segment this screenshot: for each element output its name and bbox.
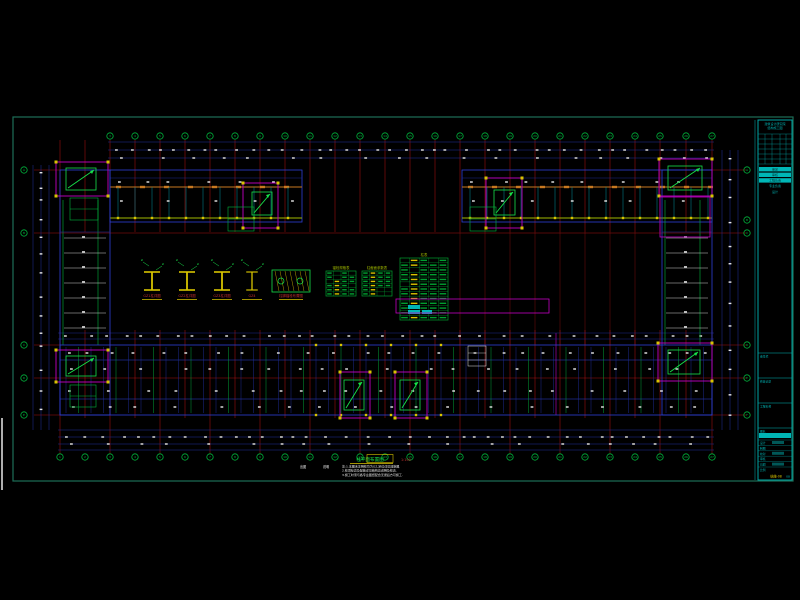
svg-text:6: 6 [184, 134, 186, 138]
svg-text:11: 11 [308, 455, 312, 459]
svg-text:23: 23 [608, 134, 612, 138]
svg-text:26: 26 [684, 455, 688, 459]
svg-text:13: 13 [358, 134, 362, 138]
svg-text:10: 10 [283, 134, 287, 138]
svg-text:12: 12 [333, 134, 337, 138]
svg-text:柱平面布置图: 柱平面布置图 [356, 456, 384, 463]
svg-text:C: C [23, 343, 25, 347]
svg-text:GZ3柱详图: GZ3柱详图 [213, 293, 231, 298]
svg-text:22: 22 [583, 455, 587, 459]
svg-text:比例: 比例 [760, 468, 766, 472]
svg-text:⌀: ⌀ [162, 262, 164, 266]
svg-text:23: 23 [608, 455, 612, 459]
svg-text:15: 15 [408, 134, 412, 138]
svg-text:24: 24 [633, 134, 637, 138]
svg-text:柱截面参数表: 柱截面参数表 [367, 265, 388, 270]
svg-text:会签栏: 会签栏 [760, 355, 769, 359]
svg-text:审核: 审核 [760, 457, 766, 461]
svg-text:图名: 图名 [760, 430, 766, 434]
svg-text:27: 27 [710, 134, 714, 138]
svg-text:16: 16 [433, 134, 437, 138]
svg-text:21: 21 [558, 134, 562, 138]
svg-text:说明: 说明 [323, 464, 329, 469]
svg-text:出图: 出图 [300, 464, 306, 469]
svg-text:校对: 校对 [760, 452, 766, 456]
svg-text:结施-08: 结施-08 [770, 474, 782, 479]
svg-text:1: 1 [59, 455, 61, 459]
svg-text:GZ1柱详图: GZ1柱详图 [143, 293, 161, 298]
svg-text:E: E [23, 413, 25, 417]
svg-text:审核: 审核 [772, 172, 778, 177]
svg-text:5: 5 [159, 134, 161, 138]
svg-text:F: F [746, 413, 748, 417]
svg-text:GZ4: GZ4 [248, 294, 255, 298]
svg-text:5: 5 [159, 455, 161, 459]
svg-text:柱脚锚栓布置图: 柱脚锚栓布置图 [279, 293, 303, 298]
svg-text:19: 19 [508, 455, 512, 459]
svg-text:22: 22 [583, 134, 587, 138]
svg-text:27: 27 [710, 455, 714, 459]
svg-text:4: 4 [134, 134, 136, 138]
svg-text:8: 8 [234, 455, 236, 459]
svg-text:26: 26 [684, 134, 688, 138]
svg-text:修改记录: 修改记录 [760, 380, 771, 384]
svg-text:21: 21 [558, 455, 562, 459]
svg-text:审定: 审定 [772, 166, 778, 171]
svg-text:17: 17 [458, 134, 462, 138]
svg-text:⌀: ⌀ [241, 258, 243, 262]
svg-text:1:100: 1:100 [401, 458, 411, 462]
svg-text:GZ2柱详图: GZ2柱详图 [178, 293, 196, 298]
svg-text:08: 08 [786, 475, 790, 479]
svg-text:7: 7 [209, 455, 211, 459]
svg-text:⌀: ⌀ [197, 262, 199, 266]
svg-text:⌀: ⌀ [211, 258, 213, 262]
svg-text:20: 20 [533, 134, 537, 138]
svg-text:3: 3 [109, 455, 111, 459]
svg-text:B: B [746, 218, 748, 222]
cad-canvas: 1233445566778899101011111212131314141515… [0, 0, 800, 600]
svg-text:设计: 设计 [760, 441, 766, 445]
svg-text:设计: 设计 [772, 189, 778, 194]
svg-text:⌀: ⌀ [262, 262, 264, 266]
svg-text:日期: 日期 [760, 463, 766, 467]
svg-text:3.施工时须与各专业图纸配合无误后方可施工.: 3.施工时须与各专业图纸配合无误后方可施工. [342, 472, 403, 477]
svg-text:结构施工图: 结构施工图 [767, 125, 782, 130]
svg-text:⌀: ⌀ [141, 258, 143, 262]
svg-text:9: 9 [259, 455, 261, 459]
svg-text:16: 16 [433, 455, 437, 459]
cad-sheet: 1233445566778899101011111212131314141515… [0, 0, 800, 600]
svg-text:工程负责: 工程负责 [769, 178, 781, 183]
svg-text:14: 14 [383, 134, 387, 138]
svg-text:18: 18 [483, 134, 487, 138]
svg-text:专业负责: 专业负责 [769, 183, 781, 188]
svg-text:8: 8 [234, 134, 236, 138]
svg-text:25: 25 [658, 455, 662, 459]
svg-text:9: 9 [259, 134, 261, 138]
svg-text:C: C [746, 231, 748, 235]
svg-text:E: E [746, 376, 748, 380]
svg-text:制图: 制图 [760, 446, 766, 450]
svg-text:19: 19 [508, 134, 512, 138]
svg-text:25: 25 [658, 134, 662, 138]
svg-text:锚栓规格表: 锚栓规格表 [333, 265, 351, 270]
svg-text:⌀: ⌀ [232, 262, 234, 266]
svg-text:柱表: 柱表 [421, 252, 428, 257]
svg-text:4: 4 [134, 455, 136, 459]
svg-text:B: B [23, 231, 25, 235]
svg-text:7: 7 [209, 134, 211, 138]
svg-text:工程名称: 工程名称 [760, 405, 771, 409]
svg-text:10: 10 [283, 455, 287, 459]
svg-text:12: 12 [333, 455, 337, 459]
svg-text:11: 11 [308, 134, 312, 138]
svg-text:18: 18 [483, 455, 487, 459]
svg-text:⌀: ⌀ [176, 258, 178, 262]
svg-text:3: 3 [109, 134, 111, 138]
svg-text:6: 6 [184, 455, 186, 459]
svg-text:20: 20 [533, 455, 537, 459]
svg-text:17: 17 [458, 455, 462, 459]
svg-text:2: 2 [84, 455, 86, 459]
svg-text:24: 24 [633, 455, 637, 459]
